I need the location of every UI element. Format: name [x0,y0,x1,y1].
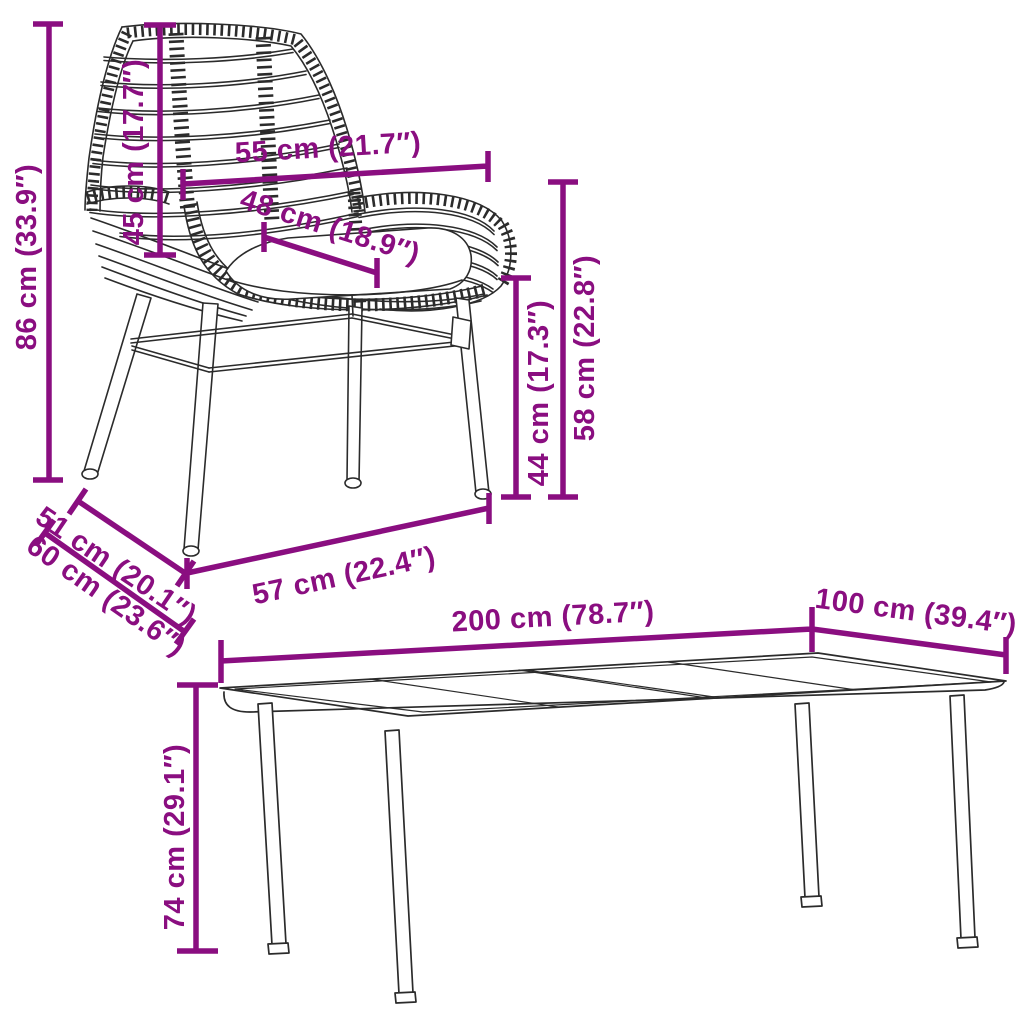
chair-rail [132,346,209,368]
chair-rail [352,314,465,337]
dim-label: 200 cm (78.7″) [451,596,655,639]
chair-rail-post [352,295,353,316]
chair-leg-front-mid [184,303,218,550]
table-leg-back-left [258,703,286,945]
chair-rail [131,314,352,339]
chair-foot-cap [82,469,98,479]
dim-table-height: 74 cm (29.1″) [159,685,218,951]
table-foot-cap [801,896,822,907]
dim-chair-seat-height: 44 cm (17.3″) [501,278,555,497]
table-leg-front-left [385,730,413,994]
dimension-annotations: 86 cm (33.9″) 45 cm (17.7″) 55 cm (21.7″… [11,24,1019,951]
table-leg-front-right [950,695,975,939]
diagram-canvas: 86 cm (33.9″) 45 cm (17.7″) 55 cm (21.7″… [0,0,1024,1024]
chair-rail-bracket [451,317,471,349]
dim-label: 45 cm (17.7″) [118,59,150,245]
dim-label: 86 cm (33.9″) [11,164,43,350]
table-leg-back-right [795,703,819,898]
chair-foot-cap [345,478,361,488]
chair-leg-rear-left [347,306,362,482]
table-foot-cap [268,943,289,954]
dim-chair-armrest-height: 58 cm (22.8″) [548,182,601,497]
dim-label: 44 cm (17.3″) [523,300,555,486]
dim-chair-total-height: 86 cm (33.9″) [11,24,63,480]
dim-label: 74 cm (29.1″) [159,744,191,930]
table-foot-cap [957,937,978,948]
dimension-diagram: 86 cm (33.9″) 45 cm (17.7″) 55 cm (21.7″… [0,0,1024,1024]
table-foot-cap [395,992,416,1003]
dim-chair-base-width: 57 cm (22.4″) [187,493,489,611]
chair-foot-cap [183,546,199,556]
chair-leg-front-left [84,294,151,475]
table-drawing [220,653,1006,1003]
chair-rail [209,341,464,368]
chair-back-strand [104,49,293,59]
dim-label: 58 cm (22.8″) [569,255,601,441]
